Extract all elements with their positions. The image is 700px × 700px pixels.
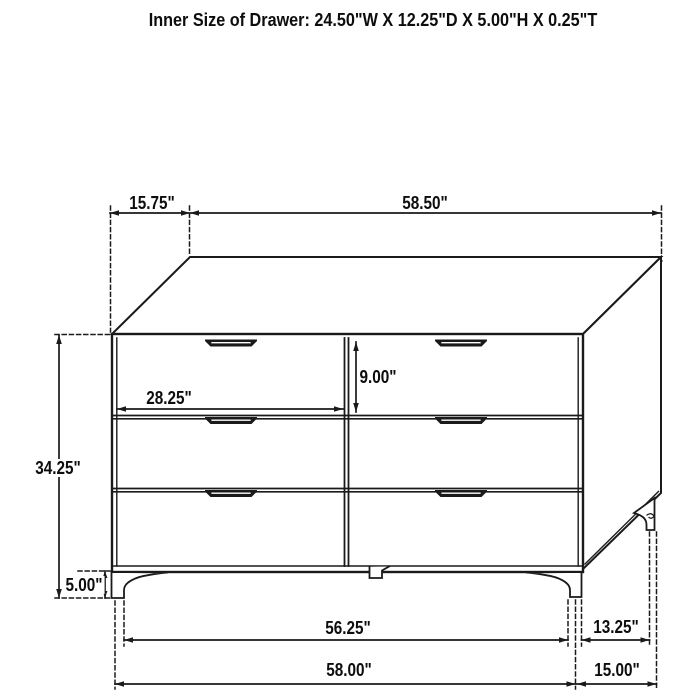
dim-label-top-depth: 15.75" [128,194,177,212]
dresser-dimension-diagram: Inner Size of Drawer: 24.50"W X 12.25"D … [0,0,700,700]
dim-label-overall-depth: 15.00" [593,661,642,679]
dim-label-side-leg-span: 13.25" [592,618,641,636]
dim-label-top-width: 58.50" [401,194,450,212]
dim-label-front-leg-span: 56.25" [324,619,373,637]
drawer-handle [435,417,487,424]
dim-label-overall-width: 58.00" [325,661,374,679]
dim-label-body-height: 34.25" [34,459,83,477]
dresser-front-face [112,334,583,572]
dim-label-drawer-width: 28.25" [145,389,194,407]
front-right-leg [526,572,582,597]
dim-label-leg-height: 5.00" [64,576,104,594]
front-left-leg [112,572,169,598]
dim-label-drawer-height: 9.00" [358,368,398,386]
drawer-handle [435,340,487,347]
drawer-handle [205,490,257,497]
diagram-title: Inner Size of Drawer: 24.50"W X 12.25"D … [149,11,598,29]
drawer-handle [435,490,487,497]
drawer-handle [205,340,257,347]
dresser-top-face [112,257,662,339]
line-drawing [0,0,700,700]
drawer-handle [205,417,257,424]
